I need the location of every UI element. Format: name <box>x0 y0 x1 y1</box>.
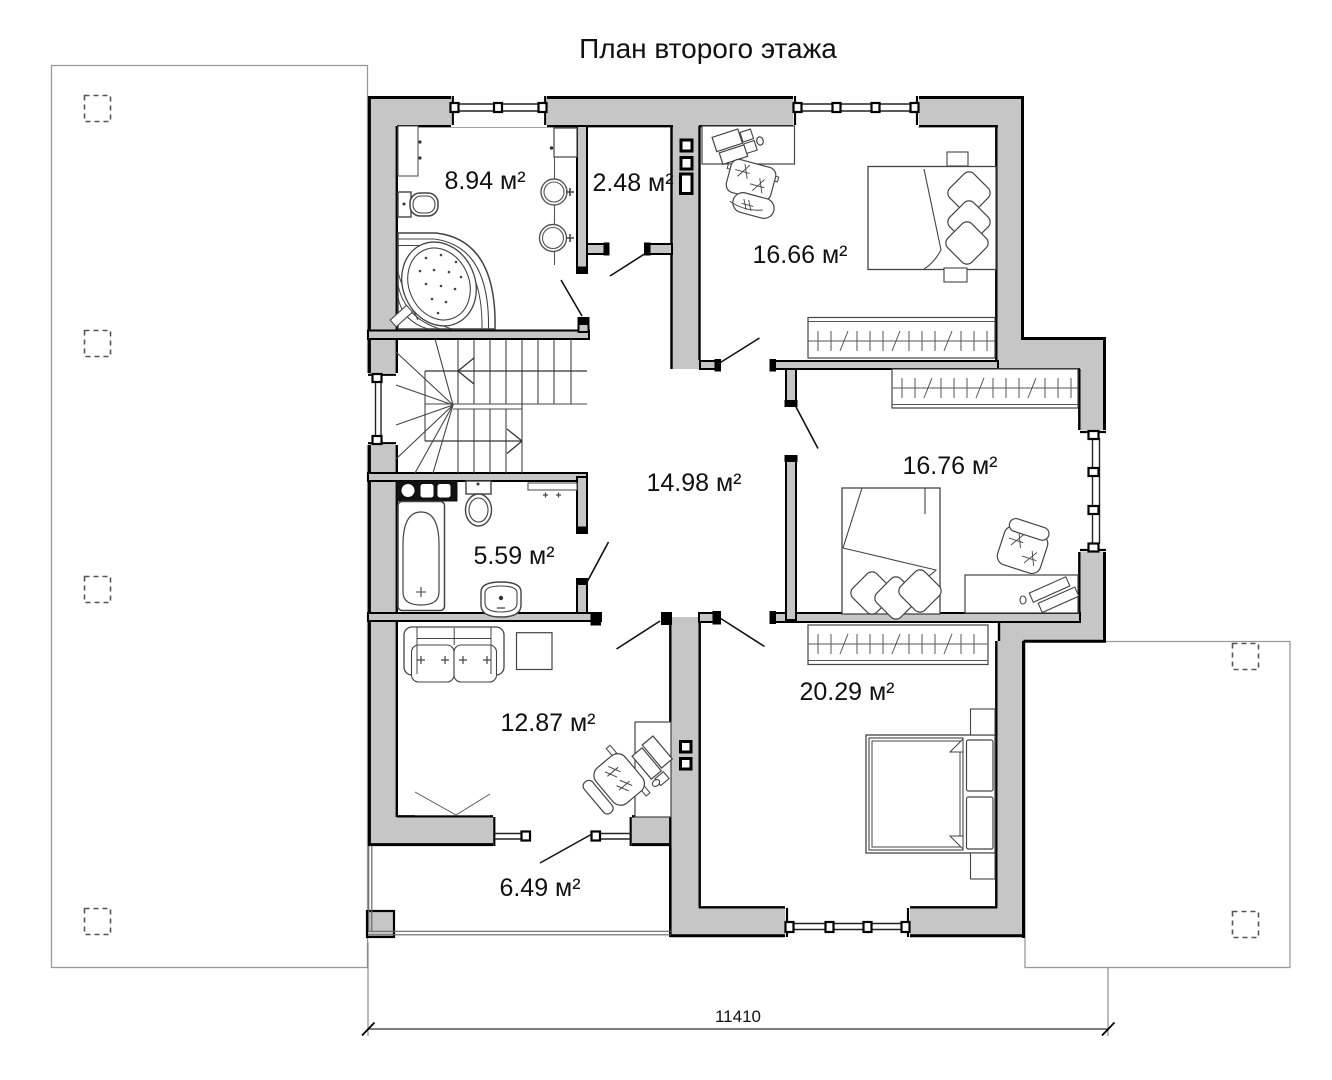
svg-text:16.66 м²: 16.66 м² <box>752 241 847 269</box>
svg-text:5.59 м²: 5.59 м² <box>473 542 554 570</box>
svg-text:14.98 м²: 14.98 м² <box>646 469 741 497</box>
svg-text:План второго этажа: План второго этажа <box>579 33 837 64</box>
svg-text:8.94 м²: 8.94 м² <box>444 167 525 195</box>
svg-text:16.76 м²: 16.76 м² <box>902 452 997 480</box>
svg-text:12.87 м²: 12.87 м² <box>500 709 595 737</box>
svg-text:11410: 11410 <box>715 1007 761 1026</box>
svg-text:6.49 м²: 6.49 м² <box>499 874 580 902</box>
svg-text:2.48 м²: 2.48 м² <box>592 169 673 197</box>
svg-text:20.29 м²: 20.29 м² <box>799 678 894 706</box>
